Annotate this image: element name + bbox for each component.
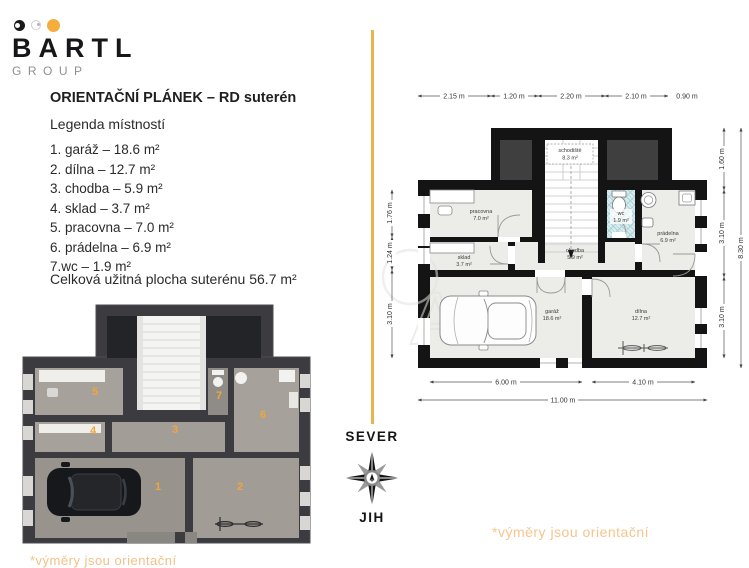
washer3d-icon — [235, 372, 247, 384]
orange-dot-icon — [47, 19, 60, 32]
brand-logo: BARTL GROUP — [12, 18, 138, 78]
brand-name: BARTL — [12, 34, 138, 62]
room-label-pracovna: pracovna — [470, 209, 494, 215]
room-number-2: 2 — [237, 481, 243, 493]
brand-dots — [14, 18, 138, 32]
compass: SEVER JIH — [333, 429, 411, 525]
room-label-dilna: dílna — [635, 309, 648, 315]
toilet3d-icon — [213, 377, 223, 387]
stair3d-wall-right — [200, 316, 206, 410]
car3d-icon — [47, 462, 141, 522]
chair-icon — [438, 206, 452, 215]
room-label-wc: wc — [617, 211, 625, 217]
room-area-schodiste: 8.3 m² — [562, 156, 578, 162]
floor-plan-2d: A schodiště 8.3 m² — [380, 82, 745, 427]
garage-door-pillar — [175, 532, 185, 543]
dim-top-5: 0.90 m — [676, 94, 698, 101]
ghost-dot-icon — [31, 20, 41, 30]
note-text-clipped: *výměry jsou orientační — [30, 553, 177, 568]
legend-list: 1. garáž – 18.6 m² 2. dílna – 12.7 m² 3.… — [50, 140, 174, 277]
toilet3d-tank-icon — [212, 370, 224, 375]
sink-basin-icon — [683, 194, 692, 202]
floor-plan-3d: 5 4 3 7 6 1 2 — [15, 300, 335, 558]
dim-top-3: 2.20 m — [560, 94, 582, 101]
legend-item: 3. chodba – 5.9 m² — [50, 179, 174, 199]
divider-line — [371, 30, 374, 424]
wall-stair-right — [598, 180, 605, 263]
dim-bottom-2: 4.10 m — [632, 380, 654, 387]
room-area-garaz: 18.6 m² — [543, 316, 562, 322]
stair3d-wall-left — [137, 316, 143, 410]
page: { "brand": { "name": "BARTL", "group": "… — [0, 0, 749, 562]
brand-group: GROUP — [12, 64, 138, 78]
car-icon — [440, 291, 536, 350]
legend-total: Celková užitná plocha suterénu 56.7 m² — [50, 271, 297, 287]
compass-south-label: JIH — [333, 510, 411, 525]
dim-left-1: 1.76 m — [387, 202, 394, 224]
room-label-garaz: garáž — [545, 309, 559, 315]
compass-rose-icon — [341, 447, 403, 509]
room-label-sklad: sklad — [458, 255, 471, 261]
legend-item: 2. dílna – 12.7 m² — [50, 160, 174, 180]
toilet-tank-icon — [612, 191, 626, 197]
legend-item: 1. garáž – 18.6 m² — [50, 140, 174, 160]
dim-left-2: 1.24 m — [387, 242, 394, 264]
dim-right-3: 3.10 m — [719, 306, 726, 328]
desk3d — [39, 370, 105, 382]
legend-item: 5. pracovna – 7.0 m² — [50, 218, 174, 238]
wall-stair-left — [538, 180, 545, 263]
room-number-1: 1 — [155, 481, 161, 493]
garage-door3d-2 — [185, 532, 197, 543]
chair3d-icon — [47, 388, 58, 397]
room-area-sklad: 3.7 m² — [456, 262, 472, 268]
dim-top-2: 1.20 m — [503, 94, 525, 101]
room-area-wc: 1.9 m² — [613, 218, 629, 224]
room-number-4: 4 — [90, 425, 97, 437]
room-dark-right — [607, 140, 658, 180]
room-number-7: 7 — [216, 390, 222, 402]
cabinet3d — [289, 392, 298, 408]
washer-icon — [641, 193, 656, 208]
room-number-5: 5 — [92, 386, 98, 398]
page-title: ORIENTAČNÍ PLÁNEK – RD suterén — [50, 90, 296, 106]
desk — [430, 190, 474, 203]
dim-right-1: 1.60 m — [719, 148, 726, 170]
dim-top-1: 2.15 m — [443, 94, 465, 101]
dim-right-2: 3.10 m — [719, 222, 726, 244]
dim-bottom-1: 6.00 m — [495, 380, 517, 387]
room-area-dilna: 12.7 m² — [632, 316, 651, 322]
dim-right-total: 8.30 m — [738, 237, 745, 259]
legend-item: 4. sklad – 3.7 m² — [50, 199, 174, 219]
basin-icon — [642, 218, 653, 227]
room-label-schodiste: schodiště — [558, 148, 581, 154]
shelf — [430, 243, 474, 253]
room3d-dark-right — [206, 316, 261, 358]
note-text: *výměry jsou orientační — [492, 524, 649, 540]
compass-north-label: SEVER — [333, 429, 411, 444]
room-number-6: 6 — [260, 409, 266, 421]
legend-item: 6. prádelna – 6.9 m² — [50, 238, 174, 258]
room-number-3: 3 — [172, 424, 178, 436]
dim-left-3: 3.10 m — [387, 303, 394, 325]
room3d-dark-left — [107, 316, 137, 358]
garage-door3d — [127, 532, 175, 543]
room3d-chodba — [112, 422, 225, 452]
room-area-chodba: 5.9 m² — [567, 255, 583, 261]
legend-heading: Legenda místností — [50, 116, 165, 132]
room-label-chodba: chodba — [566, 248, 585, 254]
room-label-pradelna: prádelna — [657, 231, 679, 237]
room-area-pracovna: 7.0 m² — [473, 216, 489, 222]
room-dark-left — [500, 140, 532, 180]
room-area-pradelna: 6.9 m² — [660, 238, 676, 244]
dim-bottom-total: 11.00 m — [551, 398, 576, 405]
eye-dot-icon — [14, 20, 25, 31]
dim-top-4: 2.10 m — [625, 94, 647, 101]
sink3d-icon — [279, 370, 295, 382]
